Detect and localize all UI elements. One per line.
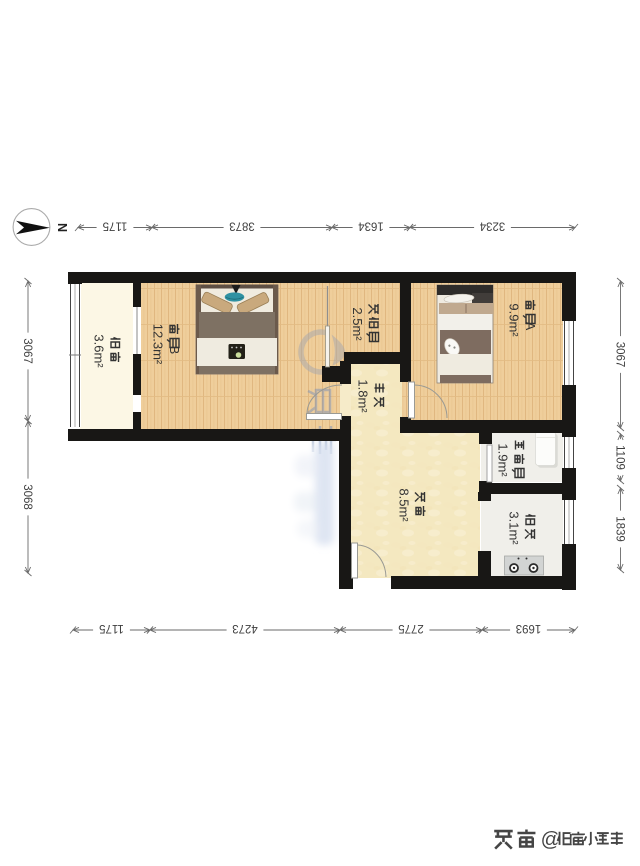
svg-text:1.8m²: 1.8m² bbox=[356, 379, 371, 413]
svg-text:1693: 1693 bbox=[516, 622, 542, 634]
svg-text:1839: 1839 bbox=[614, 516, 626, 542]
svg-text:1175: 1175 bbox=[103, 220, 128, 232]
svg-text:3.6m²: 3.6m² bbox=[92, 334, 107, 368]
svg-text:12.3m²: 12.3m² bbox=[151, 324, 166, 365]
svg-text:3067: 3067 bbox=[21, 338, 33, 364]
svg-text:N: N bbox=[55, 223, 69, 232]
svg-text:4273: 4273 bbox=[232, 622, 258, 634]
svg-text:3873: 3873 bbox=[229, 220, 255, 232]
svg-text:3.1m²: 3.1m² bbox=[507, 511, 522, 545]
svg-text:3234: 3234 bbox=[479, 220, 505, 232]
svg-text:2775: 2775 bbox=[398, 622, 424, 634]
svg-text:1109: 1109 bbox=[614, 445, 626, 470]
svg-text:A: A bbox=[523, 322, 537, 331]
svg-text:9.9m²: 9.9m² bbox=[507, 303, 522, 337]
svg-text:1175: 1175 bbox=[99, 622, 124, 634]
svg-text:3067: 3067 bbox=[614, 342, 626, 368]
svg-text:B: B bbox=[167, 346, 181, 354]
svg-text:8.5m²: 8.5m² bbox=[397, 488, 412, 522]
svg-text:1634: 1634 bbox=[358, 220, 384, 232]
svg-text:2.5m²: 2.5m² bbox=[350, 307, 365, 341]
svg-text:3068: 3068 bbox=[21, 484, 33, 510]
svg-text:1.9m²: 1.9m² bbox=[496, 443, 511, 477]
